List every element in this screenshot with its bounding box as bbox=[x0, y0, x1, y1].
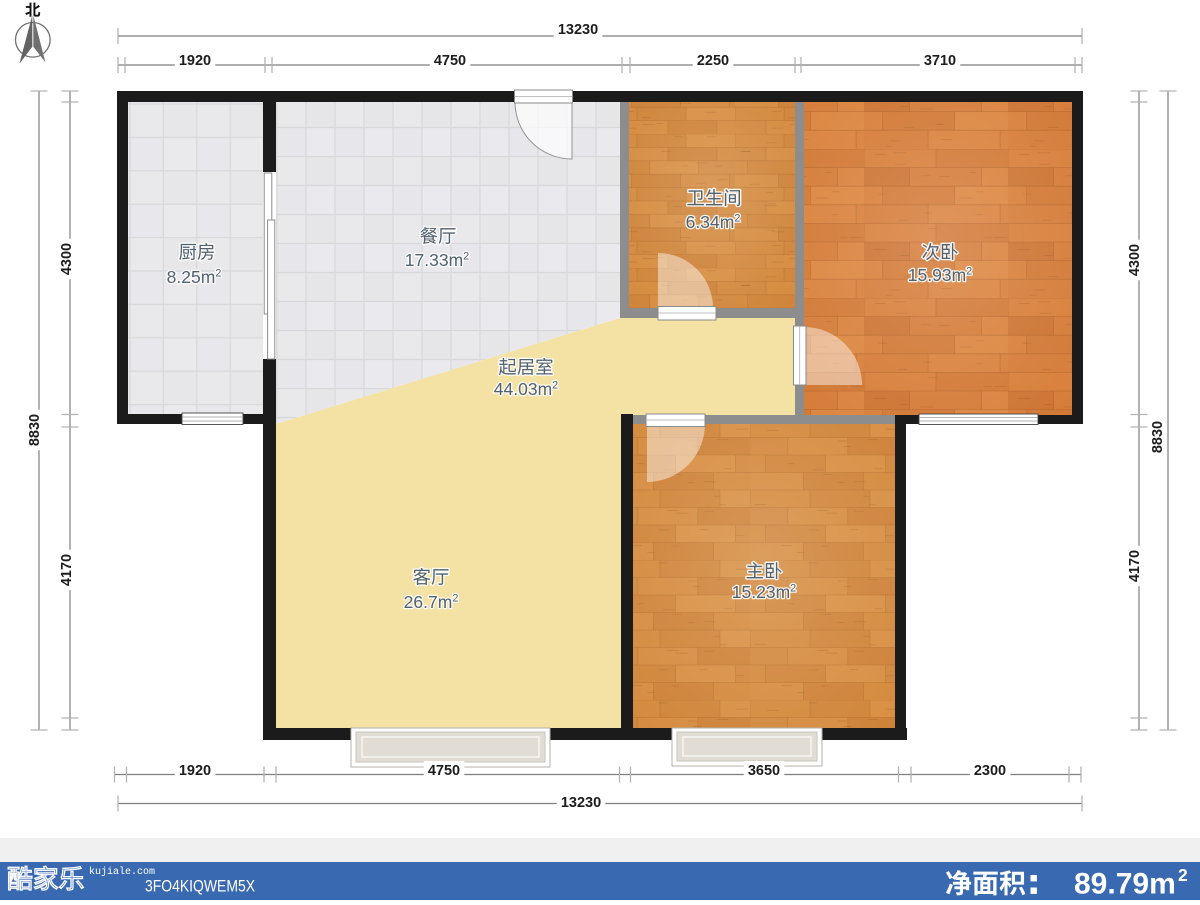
svg-text:2300: 2300 bbox=[974, 763, 1006, 779]
svg-text:13230: 13230 bbox=[561, 795, 601, 811]
svg-text:44.03m2: 44.03m2 bbox=[494, 379, 558, 399]
svg-text:4750: 4750 bbox=[434, 53, 466, 69]
svg-text:1920: 1920 bbox=[179, 763, 211, 779]
svg-text:13230: 13230 bbox=[558, 22, 598, 38]
svg-text:89.79m: 89.79m bbox=[1074, 868, 1176, 901]
svg-text:2250: 2250 bbox=[697, 53, 729, 69]
svg-text:1920: 1920 bbox=[179, 53, 211, 69]
svg-text:8830: 8830 bbox=[27, 414, 43, 446]
svg-text:8.25m2: 8.25m2 bbox=[167, 267, 222, 287]
svg-text:4170: 4170 bbox=[59, 554, 75, 586]
svg-text:4750: 4750 bbox=[428, 763, 460, 779]
svg-text:6.34m2: 6.34m2 bbox=[686, 212, 741, 232]
svg-text:3710: 3710 bbox=[924, 53, 956, 69]
svg-text:17.33m2: 17.33m2 bbox=[405, 250, 469, 270]
svg-text:4300: 4300 bbox=[1127, 244, 1143, 276]
svg-text:15.93m2: 15.93m2 bbox=[908, 265, 972, 285]
svg-text:15.23m2: 15.23m2 bbox=[732, 582, 796, 602]
svg-text:4300: 4300 bbox=[59, 243, 75, 275]
svg-text:kujiale.com: kujiale.com bbox=[89, 866, 155, 878]
svg-text:3650: 3650 bbox=[748, 763, 780, 779]
svg-text:26.7m2: 26.7m2 bbox=[404, 592, 459, 612]
svg-text:3FO4KIQWEM5X: 3FO4KIQWEM5X bbox=[145, 878, 255, 896]
svg-text:4170: 4170 bbox=[1127, 550, 1143, 582]
svg-text:8830: 8830 bbox=[1150, 421, 1166, 453]
svg-text:2: 2 bbox=[1178, 865, 1188, 885]
